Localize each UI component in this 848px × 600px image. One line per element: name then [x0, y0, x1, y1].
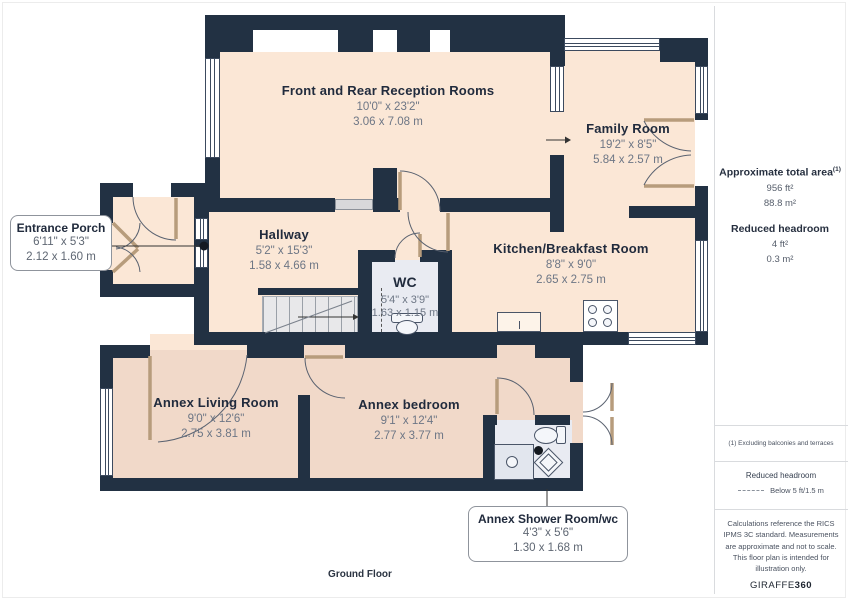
room-label-kitchen: Kitchen/Breakfast Room 8'8" x 9'0" 2.65 …: [471, 242, 671, 287]
room-label-family: Family Room 19'2" x 8'5" 5.84 x 2.57 m: [558, 122, 698, 167]
callout-annex-shower: Annex Shower Room/wc 4'3" x 5'6" 1.30 x …: [468, 506, 628, 562]
floorplan: Front and Rear Reception Rooms 10'0" x 2…: [0, 0, 714, 600]
room-label-reception: Front and Rear Reception Rooms 10'0" x 2…: [238, 84, 538, 129]
callout-entrance-porch: Entrance Porch 6'11" x 5'3" 2.12 x 1.60 …: [10, 215, 112, 271]
room-label-annex-bedroom: Annex bedroom 9'1" x 12'4" 2.77 x 3.77 m: [329, 398, 489, 443]
floor-label: Ground Floor: [285, 569, 435, 580]
room-label-annex-living: Annex Living Room 9'0" x 12'6" 2.75 x 3.…: [136, 396, 296, 441]
room-label-wc: WC: [375, 274, 435, 290]
room-label-hallway: Hallway 5'2" x 15'3" 1.58 x 4.66 m: [214, 228, 354, 273]
room-label-wc-dims: 5'4" x 3'9" 1.63 x 1.15 m: [350, 292, 460, 319]
